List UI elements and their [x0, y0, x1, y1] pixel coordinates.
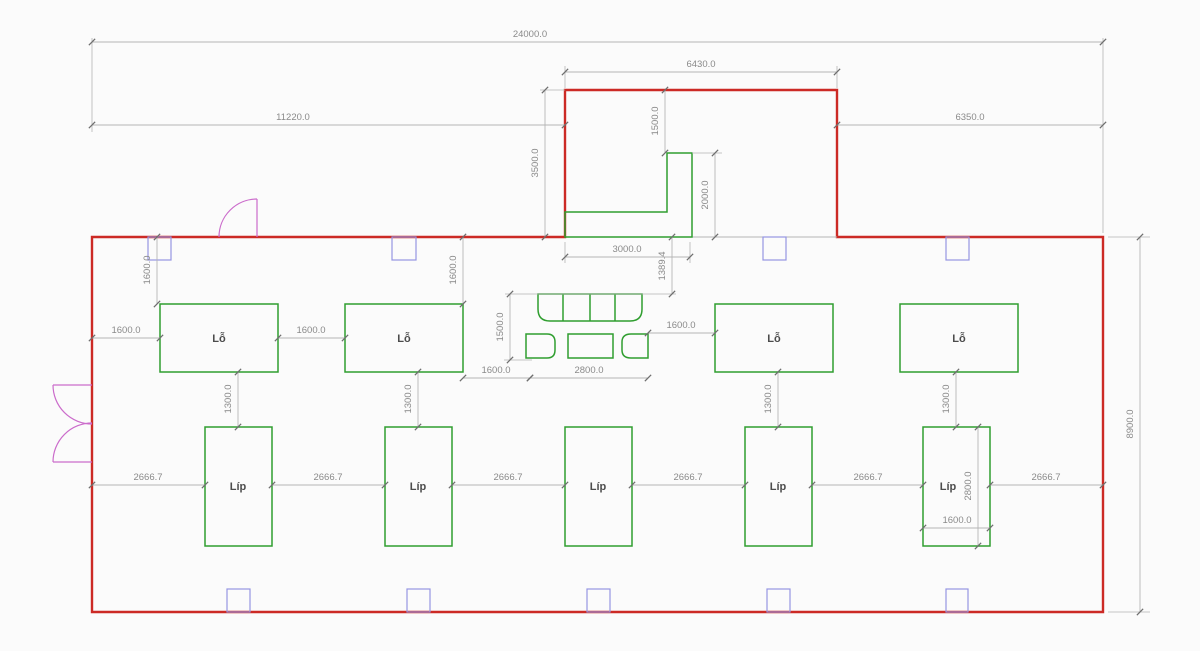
- extension-lines: [92, 38, 1150, 612]
- dim-row-gap-3-label: 1300.0: [763, 384, 774, 413]
- dim-row-gap-4-label: 1300.0: [941, 384, 952, 413]
- dim-lo2-to-sofa-label: 1600.0: [481, 365, 510, 376]
- dim-lip-gap-3-label: 2666.7: [493, 472, 522, 483]
- room-lip-4-label: Líp: [770, 481, 787, 493]
- dimensions-horizontal: 24000.0 11220.0 6430.0 6350.0 3000.0 160…: [92, 29, 1103, 528]
- dim-wall-to-lo1-top-label: 1600.0: [142, 255, 153, 284]
- building-walls: [92, 90, 1103, 612]
- room-lo-2-label: Lỗ: [397, 332, 411, 345]
- left-door-swing-arc-lower: [53, 423, 92, 462]
- room-lip-2-label: Líp: [410, 481, 427, 493]
- dim-lip-gap-2-label: 2666.7: [313, 472, 342, 483]
- wall-outline: [92, 90, 1103, 612]
- dim-row-gap-2-label: 1300.0: [403, 384, 414, 413]
- dim-lip-gap-5-label: 2666.7: [853, 472, 882, 483]
- room-lip-1-label: Líp: [230, 481, 247, 493]
- room-labels: Lỗ Lỗ Lỗ Lỗ Líp Líp Líp Líp Líp: [212, 332, 966, 493]
- dim-left-wing-label: 11220.0: [276, 112, 310, 123]
- dim-lip-gap-4-label: 2666.7: [673, 472, 702, 483]
- column-top-3: [763, 237, 786, 260]
- column-bottom-2: [407, 589, 430, 612]
- dim-counter-sofa-gap-label: 1389.4: [657, 251, 668, 280]
- armchair-right: [622, 334, 648, 358]
- coffee-table: [568, 334, 613, 358]
- column-bottom-3: [587, 589, 610, 612]
- column-bottom-4: [767, 589, 790, 612]
- dim-lip5-width-label: 1600.0: [942, 515, 971, 526]
- dim-porch-depth-label: 3500.0: [530, 148, 541, 177]
- dim-sofa-to-lo3-label: 1600.0: [666, 320, 695, 331]
- room-lip-5-label: Líp: [940, 481, 957, 493]
- dim-lip5-height-label: 2800.0: [963, 471, 974, 500]
- dim-wall-to-lo1-label: 1600.0: [111, 325, 140, 336]
- armchair-left: [526, 334, 555, 358]
- dim-porch-counter-offset-label: 1500.0: [650, 106, 661, 135]
- left-door-swing-arc-upper: [53, 385, 92, 424]
- dim-lip-gap-1-label: 2666.7: [133, 472, 162, 483]
- column-bottom-5: [946, 589, 968, 612]
- dim-overall-width-label: 24000.0: [513, 29, 547, 40]
- floor-plan-drawing: 24000.0 11220.0 6430.0 6350.0 3000.0 160…: [0, 0, 1200, 651]
- dim-porch-width-label: 6430.0: [686, 59, 715, 70]
- room-lo-1-label: Lỗ: [212, 332, 226, 345]
- dim-counter-width-label: 3000.0: [612, 244, 641, 255]
- dim-sofa-set-width-label: 2800.0: [574, 365, 603, 376]
- floor-plan-canvas: 24000.0 11220.0 6430.0 6350.0 3000.0 160…: [0, 0, 1200, 651]
- dim-row-gap-1-label: 1300.0: [223, 384, 234, 413]
- dim-sofa-set-depth-label: 1500.0: [495, 312, 506, 341]
- column-top-2: [392, 237, 416, 260]
- dim-counter-depth-label: 2000.0: [700, 180, 711, 209]
- dim-lip-gap-6-label: 2666.7: [1031, 472, 1060, 483]
- room-lo-3-label: Lỗ: [767, 332, 781, 345]
- counter-l-shape: [565, 153, 692, 237]
- doors: [53, 199, 257, 462]
- room-lip-3-label: Líp: [590, 481, 607, 493]
- column-top-4: [946, 237, 969, 260]
- dim-wall-to-lo2-top-label: 1600.0: [448, 255, 459, 284]
- room-lo-4-label: Lỗ: [952, 332, 966, 345]
- column-bottom-1: [227, 589, 250, 612]
- dim-right-wing-label: 6350.0: [955, 112, 984, 123]
- dim-overall-depth-label: 8900.0: [1125, 409, 1136, 438]
- dim-lo1-to-lo2-label: 1600.0: [296, 325, 325, 336]
- top-door-swing-arc: [219, 199, 257, 237]
